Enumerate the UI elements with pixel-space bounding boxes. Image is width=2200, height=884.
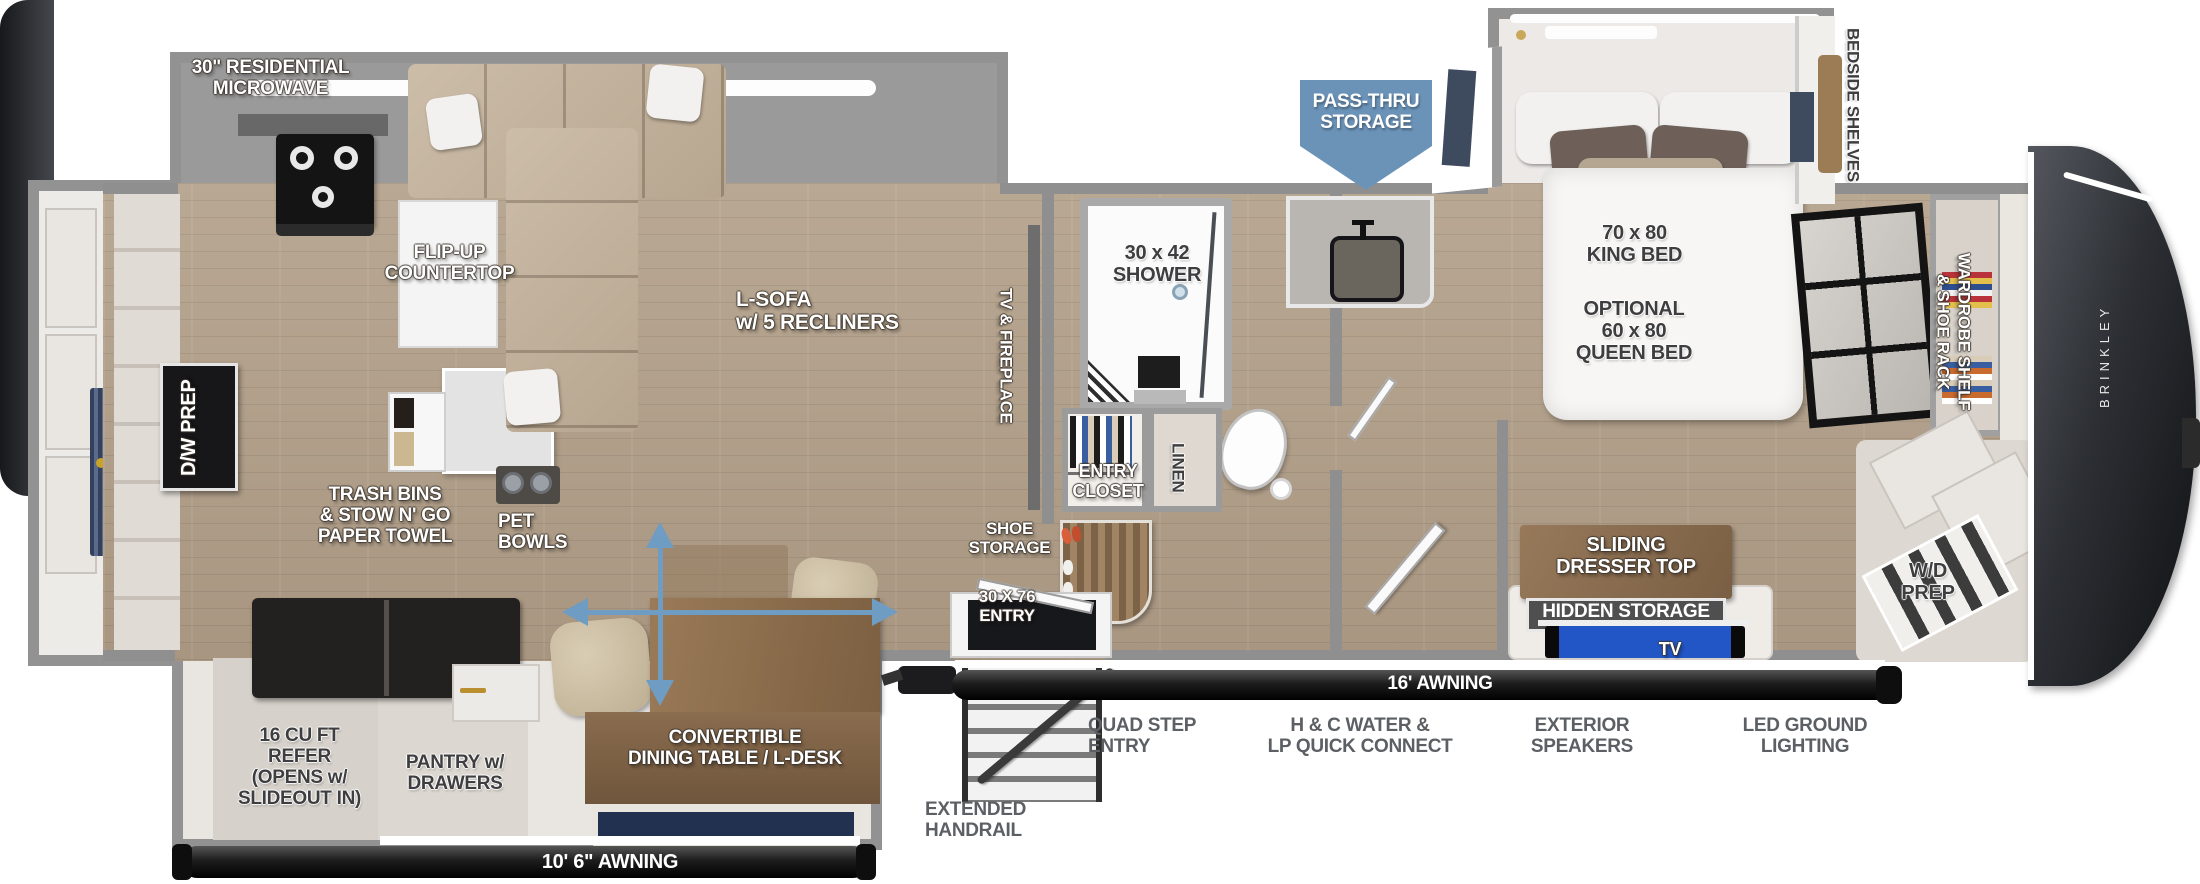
label-water-lp: H & C WATER & LP QUICK CONNECT	[1250, 716, 1470, 758]
wall-bottom	[103, 650, 175, 661]
trash-bin	[394, 398, 414, 428]
label-shower: 30 x 42 SHOWER	[1096, 242, 1218, 286]
bed-mattress	[1543, 168, 1803, 420]
sofa-pillow	[425, 93, 484, 152]
label-linen: LINEN	[1168, 424, 1187, 512]
label-awning-main: 16' AWNING	[1360, 674, 1520, 695]
label-wardrobe: WARDROBE SHELF & SHOE RACK	[1932, 232, 1975, 432]
label-extended-handrail: EXTENDED HANDRAIL	[925, 800, 1065, 842]
wall-top	[103, 183, 178, 194]
shower-head-icon	[1172, 284, 1188, 300]
label-tv-fireplace: TV & FIREPLACE	[996, 288, 1015, 468]
bedside-shelf-wood	[1818, 55, 1842, 173]
faucet-icon	[1352, 220, 1374, 225]
awning-end-cap	[1876, 666, 1902, 704]
label-pantry: PANTRY w/ DRAWERS	[385, 753, 525, 795]
label-l-sofa: L-SOFA w/ 5 RECLINERS	[736, 288, 1006, 334]
burner-icon	[290, 146, 314, 170]
wall-bath-bed	[1330, 470, 1342, 662]
wall-bottom	[878, 650, 954, 661]
label-led-lighting: LED GROUND LIGHTING	[1730, 716, 1880, 758]
wall-top	[1000, 183, 1488, 194]
pet-bowl-icon	[530, 472, 552, 494]
label-brand: BRINKLEY	[2098, 268, 2112, 443]
skylight	[1510, 14, 1820, 23]
refer-top-seam	[384, 600, 389, 696]
label-microwave: 30" RESIDENTIAL MICROWAVE	[178, 58, 363, 100]
pet-bowl-icon	[502, 472, 524, 494]
body-skirt	[955, 660, 1885, 668]
arrow-right-icon	[872, 598, 898, 626]
hitch-pin	[2182, 418, 2200, 468]
table-convert-arrow-horizontal	[585, 610, 880, 615]
body-skirt	[380, 836, 860, 845]
trash-bin	[394, 432, 414, 466]
label-trash-bins: TRASH BINS & STOW N' GO PAPER TOWEL	[295, 485, 475, 548]
label-dw-prep: D/W PREP	[178, 372, 200, 484]
front-cap-seam	[2028, 152, 2034, 680]
awning-roller-end	[898, 666, 956, 694]
wall-top	[1832, 183, 2043, 194]
table-convert-arrow-vertical	[658, 546, 663, 682]
sofa-pillow	[645, 63, 704, 122]
stove	[276, 134, 374, 228]
awning-end-cap	[172, 844, 192, 880]
skylight	[1545, 26, 1657, 39]
label-bedside-shelves: BEDSIDE SHELVES	[1843, 28, 1862, 238]
label-hidden-storage: HIDDEN STORAGE	[1526, 602, 1726, 623]
label-entry-closet: ENTRY CLOSET	[1056, 462, 1160, 502]
label-quad-step: QUAD STEP ENTRY	[1088, 716, 1228, 758]
arrow-up-icon	[646, 522, 674, 548]
label-sliding-dresser: SLIDING DRESSER TOP	[1522, 534, 1730, 578]
label-flip-up-countertop: FLIP-UP COUNTERTOP	[382, 243, 517, 285]
label-queen-bed: OPTIONAL 60 x 80 QUEEN BED	[1548, 298, 1720, 364]
microwave-shelf	[238, 114, 388, 136]
sconce-icon	[1516, 30, 1526, 40]
tv-fireplace-wall	[1028, 225, 1040, 510]
label-pass-thru: PASS-THRU STORAGE	[1302, 92, 1430, 134]
wall-bath-left	[1042, 194, 1054, 524]
shower-seat-base	[1134, 390, 1186, 404]
label-king-bed: 70 x 80 KING BED	[1552, 222, 1717, 266]
label-entry-door: 30 X 76 ENTRY	[958, 588, 1056, 625]
label-wd-prep: W/D PREP	[1886, 560, 1970, 604]
handle-icon	[460, 688, 486, 693]
burner-icon	[312, 186, 334, 208]
wall-bed-closet	[1497, 420, 1508, 661]
label-exterior-speakers: EXTERIOR SPEAKERS	[1512, 716, 1652, 758]
floorplan-diagram: 30" RESIDENTIAL MICROWAVE FLIP-UP COUNTE…	[0, 0, 2200, 884]
bath-sink	[1330, 236, 1404, 302]
label-awning-rear: 10' 6" AWNING	[460, 851, 760, 873]
pantry-top	[452, 664, 540, 722]
dining-table-top	[650, 598, 880, 712]
shower-seat	[1138, 356, 1180, 388]
label-pet-bowls: PET BOWLS	[498, 512, 608, 554]
rear-cabinet	[45, 208, 97, 328]
arrow-left-icon	[562, 598, 588, 626]
awning-end-cap	[856, 844, 876, 880]
label-shoe-storage: SHOE STORAGE	[962, 520, 1057, 557]
burner-icon	[334, 146, 358, 170]
label-dining-table: CONVERTIBLE DINING TABLE / L-DESK	[590, 728, 880, 770]
label-tv: TV	[1640, 640, 1700, 660]
stove-front	[276, 224, 374, 236]
label-refer: 16 CU FT REFER (OPENS w/ SLIDEOUT IN)	[222, 726, 377, 810]
bedroom-window	[1791, 203, 1941, 429]
dinette-chair	[548, 616, 654, 718]
bedside-window	[1790, 92, 1814, 162]
arrow-down-icon	[646, 680, 674, 706]
sofa-pillow	[503, 368, 562, 427]
shoes-icon	[1063, 560, 1073, 575]
